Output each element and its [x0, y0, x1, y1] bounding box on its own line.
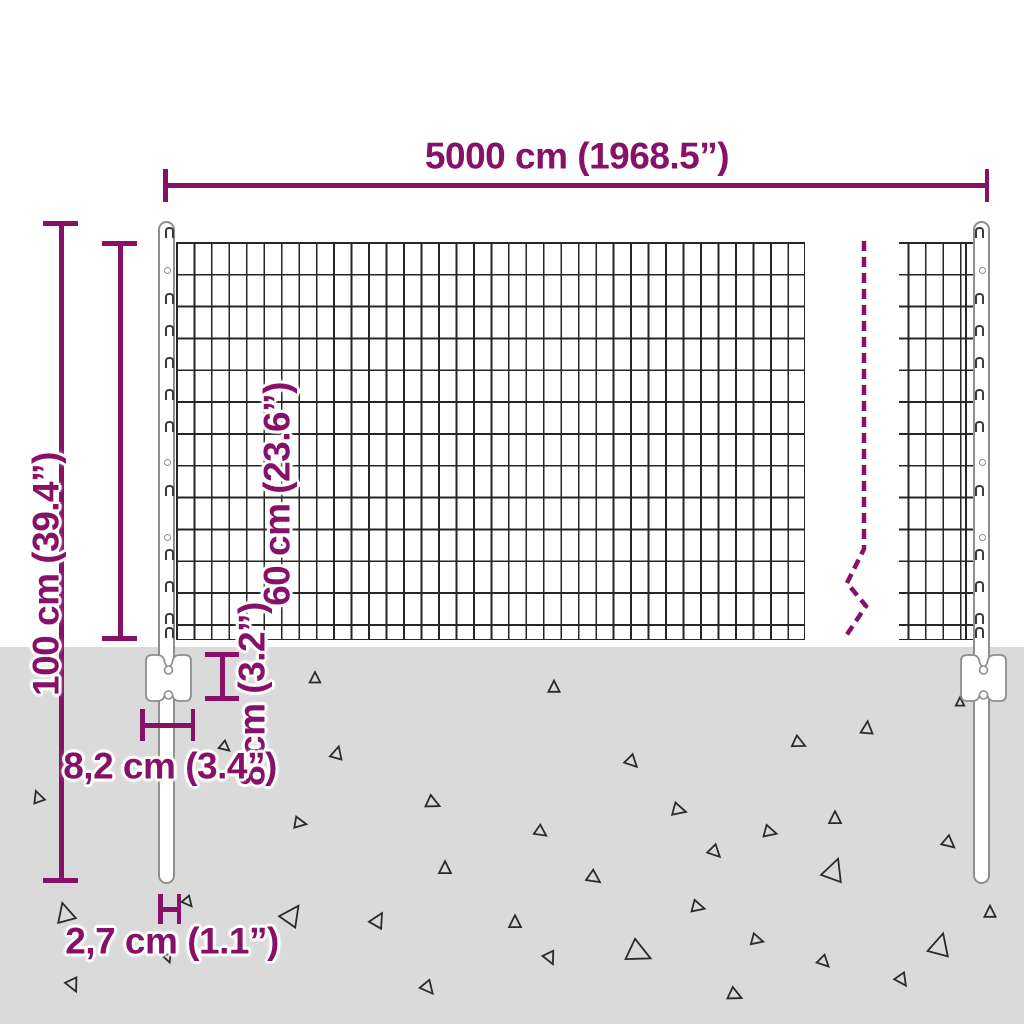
post-hole [979, 459, 986, 466]
dim-line [142, 723, 195, 728]
mesh-clip [165, 627, 174, 638]
dim-mesh-height-label: 60 cm (23.6”) [259, 382, 296, 606]
dim-tick [43, 221, 78, 226]
mesh-clip [975, 421, 984, 432]
anchor-plate-right [955, 650, 1012, 707]
dim-tick [43, 878, 78, 883]
dim-total-height-label: 100 cm (39.4”) [28, 452, 65, 696]
plate-hole [165, 666, 173, 674]
mesh-clip [975, 293, 984, 304]
mesh-clip [975, 549, 984, 560]
mesh-clip [165, 227, 174, 238]
mesh-clip [165, 485, 174, 496]
dim-tick [163, 169, 168, 202]
mesh-clip [975, 389, 984, 400]
dim-post-diameter-label: 2,7 cm (1.1”) [65, 923, 279, 960]
plate-hole [980, 666, 988, 674]
dim-tick [985, 169, 990, 202]
dim-anchor-width-label: 8,2 cm (3.4”) [63, 748, 277, 785]
post-hole [164, 459, 171, 466]
dim-tick [191, 709, 196, 741]
plate-hole [980, 691, 988, 699]
mesh-clip [975, 627, 984, 638]
mesh-clip [975, 485, 984, 496]
mesh-clip [165, 613, 174, 624]
mesh-clip [975, 581, 984, 592]
post-hole [164, 534, 171, 541]
mesh-clip [165, 421, 174, 432]
mesh-clip [975, 325, 984, 336]
dim-tick [102, 636, 137, 641]
fence-dimension-diagram: 5000 cm (1968.5”) 100 cm (39.4”) 60 cm (… [0, 0, 1024, 1024]
dim-tick [177, 894, 182, 924]
plate-hole [165, 691, 173, 699]
post-hole [979, 534, 986, 541]
panel-break-dashed-line [846, 241, 866, 636]
dim-tick [102, 241, 137, 246]
dim-line [118, 243, 123, 639]
mesh-clip [975, 613, 984, 624]
dim-line [220, 654, 225, 699]
post-hole [979, 267, 986, 274]
dim-tick [158, 894, 163, 924]
anchor-plate-left [140, 650, 197, 707]
mesh-clip [165, 581, 174, 592]
mesh-clip [165, 389, 174, 400]
dim-line [163, 183, 989, 188]
post-hole [164, 267, 171, 274]
dim-width-label: 5000 cm (1968.5”) [425, 138, 729, 175]
mesh-panel-right [899, 242, 974, 640]
mesh-clip [165, 325, 174, 336]
mesh-clip [165, 357, 174, 368]
mesh-clip [165, 549, 174, 560]
mesh-clip [975, 357, 984, 368]
dim-tick [140, 709, 145, 741]
mesh-clip [975, 227, 984, 238]
mesh-clip [165, 293, 174, 304]
